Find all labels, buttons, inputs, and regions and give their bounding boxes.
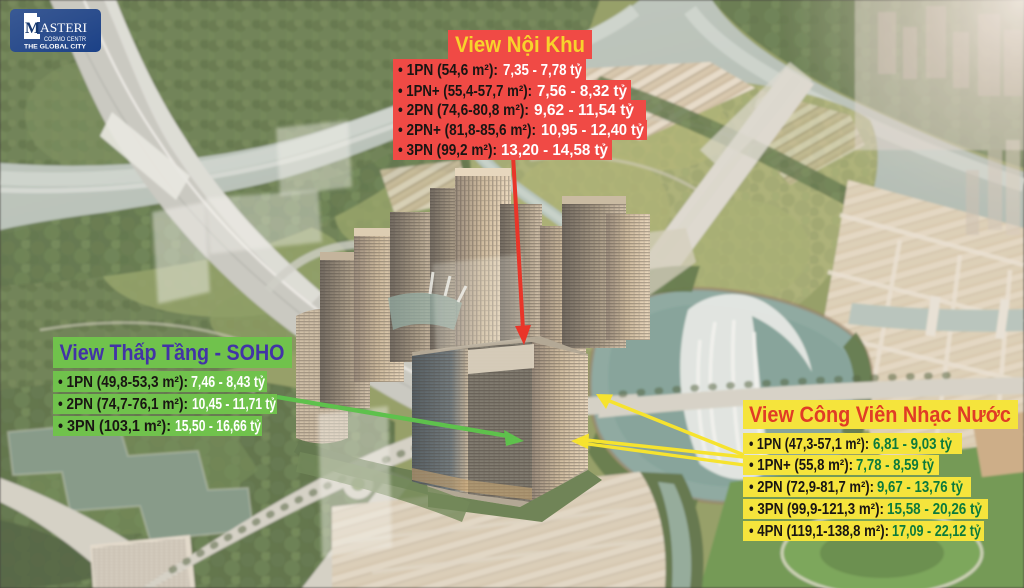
svg-text:10,45 - 11,71 tỷ: 10,45 - 11,71 tỷ [192, 396, 276, 413]
svg-text:• 1PN (49,8-53,3 m²):: • 1PN (49,8-53,3 m²): [58, 374, 188, 391]
svg-text:• 1PN (47,3-57,1 m²):: • 1PN (47,3-57,1 m²): [749, 436, 869, 453]
svg-text:15,58 - 20,26 tỷ: 15,58 - 20,26 tỷ [887, 501, 982, 518]
svg-text:• 2PN (72,9-81,7 m²):: • 2PN (72,9-81,7 m²): [749, 479, 874, 496]
svg-text:View Nội Khu: View Nội Khu [455, 32, 585, 57]
svg-text:• 2PN (74,7-76,1 m²):: • 2PN (74,7-76,1 m²): [58, 396, 188, 413]
svg-text:• 1PN+ (55,8 m²):: • 1PN+ (55,8 m²): [749, 457, 853, 474]
svg-text:View Công Viên Nhạc Nước: View Công Viên Nhạc Nước [749, 402, 1011, 427]
svg-text:7,56 - 8,32 tỷ: 7,56 - 8,32 tỷ [537, 83, 627, 100]
svg-text:9,67 - 13,76 tỷ: 9,67 - 13,76 tỷ [877, 479, 963, 496]
svg-text:10,95 - 12,40 tỷ: 10,95 - 12,40 tỷ [541, 122, 644, 139]
svg-text:7,35 - 7,78 tỷ: 7,35 - 7,78 tỷ [503, 62, 582, 79]
svg-text:THE GLOBAL CITY: THE GLOBAL CITY [24, 44, 87, 51]
svg-text:M: M [25, 20, 40, 37]
svg-text:7,46 - 8,43 tỷ: 7,46 - 8,43 tỷ [191, 374, 265, 391]
svg-text:17,09 - 22,12 tỷ: 17,09 - 22,12 tỷ [892, 523, 981, 540]
svg-text:• 2PN+ (81,8-85,6 m²):: • 2PN+ (81,8-85,6 m²): [398, 122, 536, 139]
svg-text:7,78 - 8,59 tỷ: 7,78 - 8,59 tỷ [856, 457, 934, 474]
svg-text:• 3PN (99,9-121,3 m²):: • 3PN (99,9-121,3 m²): [749, 501, 884, 518]
svg-text:• 4PN (119,1-138,8 m²):: • 4PN (119,1-138,8 m²): [749, 523, 889, 540]
svg-text:View Thấp Tầng - SOHO: View Thấp Tầng - SOHO [60, 340, 285, 365]
svg-text:ASTERI: ASTERI [40, 21, 87, 35]
svg-text:• 3PN (103,1 m²):: • 3PN (103,1 m²): [58, 418, 171, 435]
svg-text:• 2PN (74,6-80,8 m²):: • 2PN (74,6-80,8 m²): [398, 102, 529, 119]
svg-text:• 1PN+ (55,4-57,7 m²):: • 1PN+ (55,4-57,7 m²): [398, 83, 532, 100]
svg-text:6,81 - 9,03 tỷ: 6,81 - 9,03 tỷ [873, 436, 952, 453]
svg-text:• 3PN (99,2 m²):: • 3PN (99,2 m²): [398, 142, 497, 159]
svg-text:9,62 - 11,54 tỷ: 9,62 - 11,54 tỷ [534, 102, 634, 119]
svg-text:COSMO CENTR: COSMO CENTR [44, 37, 87, 43]
svg-text:15,50 - 16,66 tỷ: 15,50 - 16,66 tỷ [175, 418, 261, 435]
svg-text:13,20 - 14,58 tỷ: 13,20 - 14,58 tỷ [501, 142, 608, 159]
svg-text:• 1PN (54,6 m²):: • 1PN (54,6 m²): [398, 62, 498, 79]
